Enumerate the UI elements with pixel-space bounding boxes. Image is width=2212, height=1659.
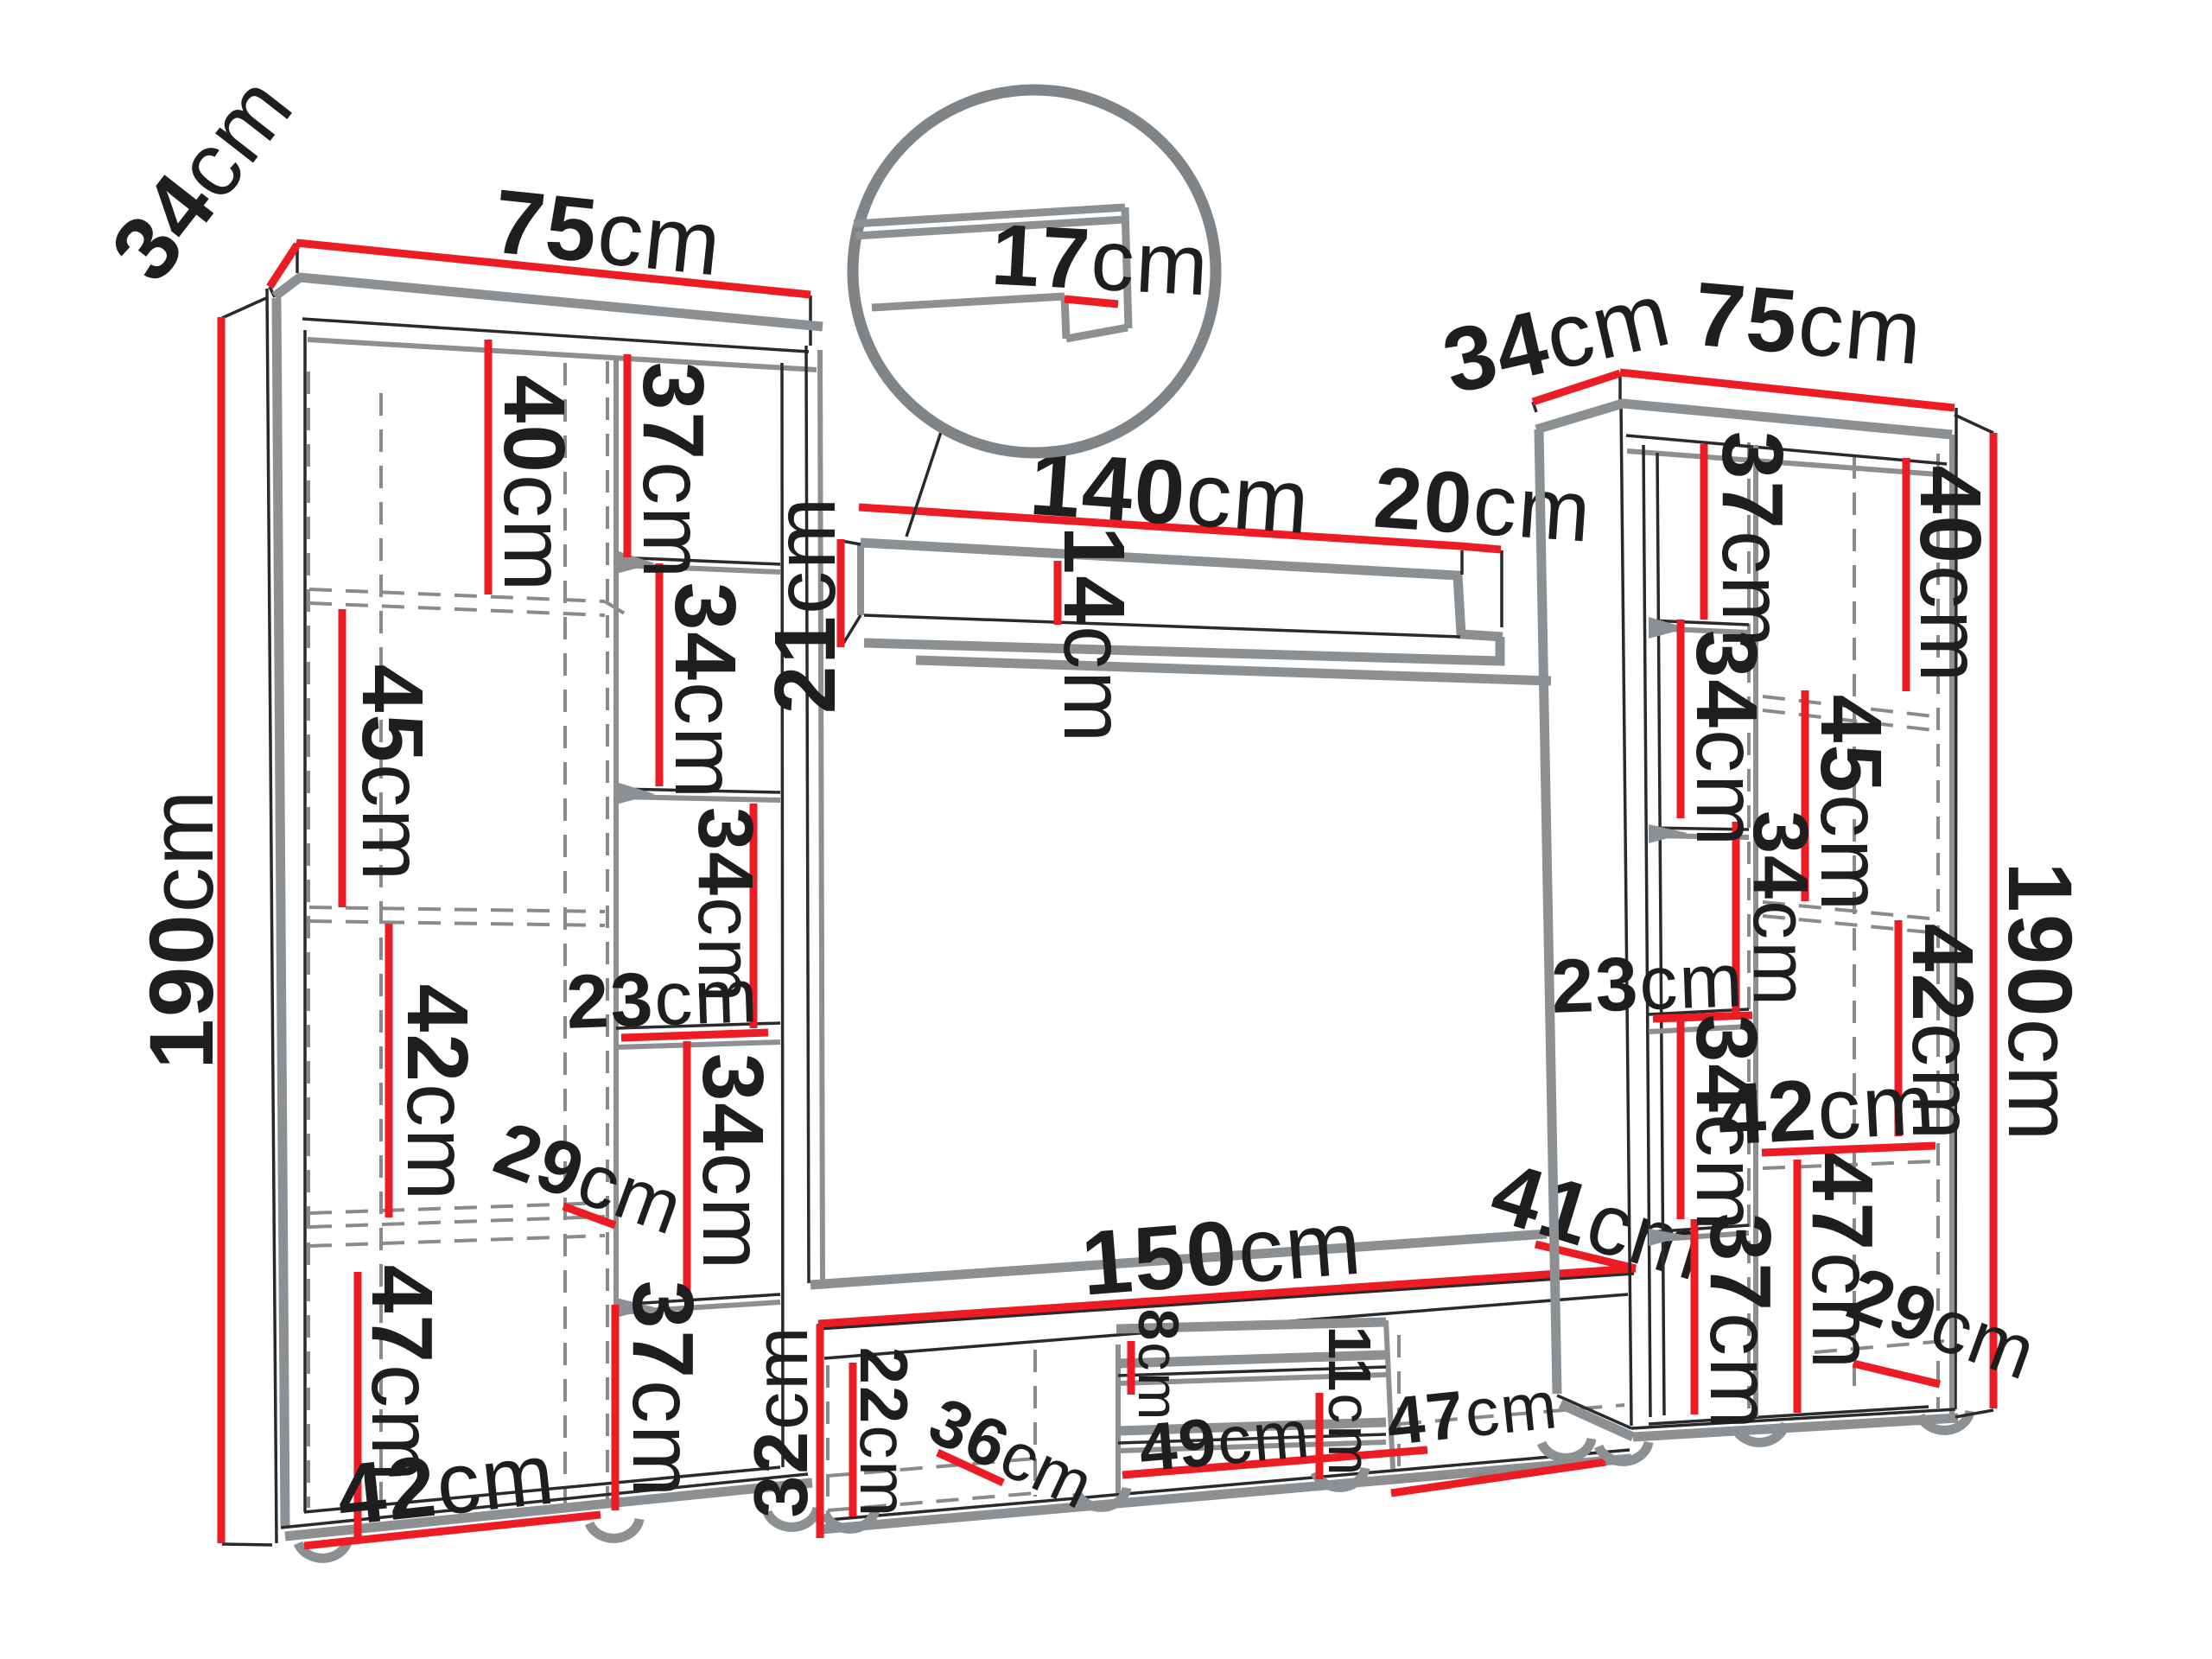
svg-text:40cm: 40cm bbox=[1902, 466, 1999, 684]
svg-text:22cm: 22cm bbox=[846, 1347, 922, 1519]
svg-text:37cm: 37cm bbox=[1692, 1213, 1789, 1432]
svg-text:42cm: 42cm bbox=[1715, 1056, 1938, 1164]
svg-text:34cm: 34cm bbox=[684, 1053, 781, 1272]
svg-text:75cm: 75cm bbox=[1690, 264, 1927, 385]
svg-text:14cm: 14cm bbox=[1046, 526, 1142, 745]
svg-text:49cm: 49cm bbox=[1136, 1395, 1314, 1486]
svg-text:190cm: 190cm bbox=[131, 788, 232, 1069]
svg-text:34cm: 34cm bbox=[1737, 810, 1823, 1007]
svg-text:32cm: 32cm bbox=[738, 1325, 823, 1517]
svg-text:11cm: 11cm bbox=[1316, 1325, 1383, 1477]
svg-text:42cm: 42cm bbox=[389, 984, 486, 1203]
svg-text:8cm: 8cm bbox=[1127, 1309, 1191, 1422]
svg-text:23cm: 23cm bbox=[1550, 937, 1746, 1029]
svg-text:37cm: 37cm bbox=[625, 362, 721, 581]
svg-text:40cm: 40cm bbox=[486, 375, 582, 594]
svg-text:23cm: 23cm bbox=[565, 952, 761, 1045]
svg-text:20cm: 20cm bbox=[1370, 448, 1595, 560]
svg-text:37cm: 37cm bbox=[1704, 431, 1801, 650]
svg-text:21cm: 21cm bbox=[757, 496, 854, 715]
svg-text:17cm: 17cm bbox=[989, 207, 1212, 315]
svg-text:45cm: 45cm bbox=[344, 664, 441, 883]
svg-text:34cm: 34cm bbox=[657, 582, 753, 801]
svg-text:190cm: 190cm bbox=[1989, 861, 2090, 1142]
svg-text:37cm: 37cm bbox=[614, 1281, 711, 1499]
